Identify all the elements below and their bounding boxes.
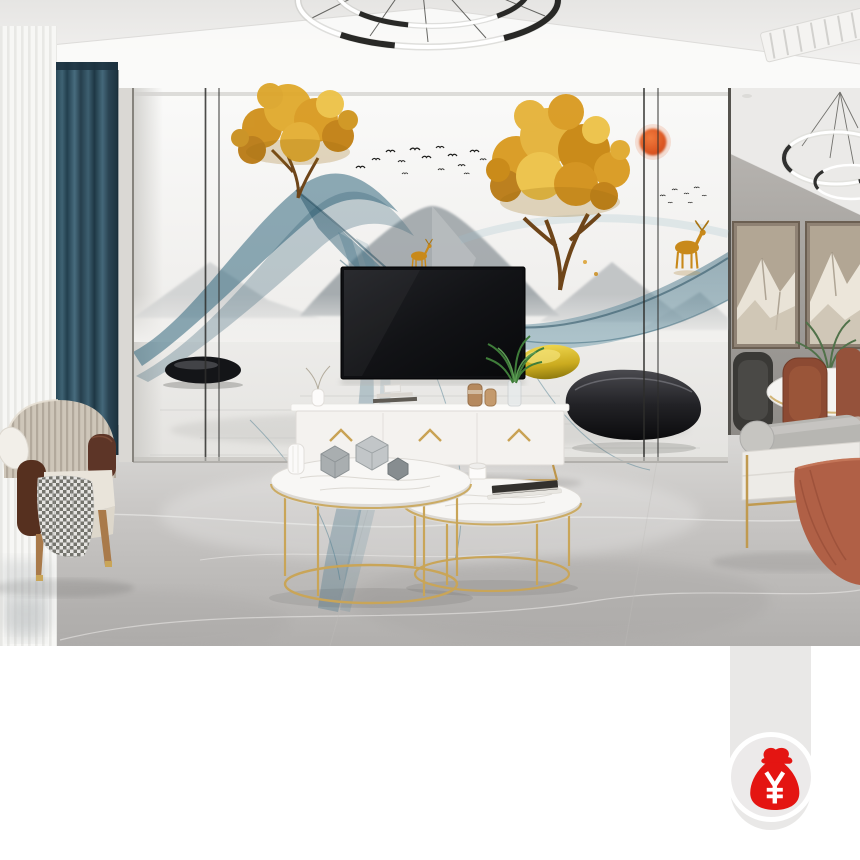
houndstooth-blanket xyxy=(37,476,94,558)
product-card: R23480 高端定制/艺术背景墙/做最美墙饰/彰显奢华美居/为你的家居添彩 xyxy=(0,0,860,860)
coffee-cup xyxy=(469,463,486,479)
tv xyxy=(341,267,525,385)
room-photo xyxy=(0,0,860,646)
ribbed-vase xyxy=(288,444,304,474)
mountain-painting-left xyxy=(733,222,799,348)
price-badge-capsule xyxy=(730,646,811,830)
downlight xyxy=(742,94,752,98)
mountain-painting-right xyxy=(806,222,860,348)
sheer-curtain xyxy=(0,26,57,646)
badge-circle xyxy=(726,732,816,822)
money-bag-icon xyxy=(740,743,802,811)
black-stone-left xyxy=(163,357,243,390)
wall-left-return xyxy=(119,88,133,462)
blue-curtain xyxy=(56,62,118,455)
